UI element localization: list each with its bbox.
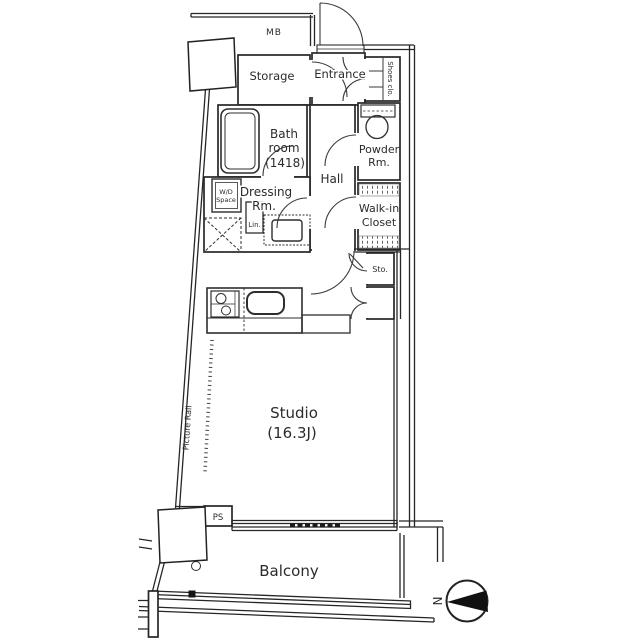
label-powder-2: Rm.	[368, 156, 390, 169]
label-bathroom-3: (1418)	[265, 156, 305, 170]
label-studio-2: (16.3J)	[267, 424, 317, 442]
label-picture-rail: Picture Rail	[181, 405, 193, 450]
label-entrance: Entrance	[314, 67, 366, 81]
floor-plan-page: MB Storage Entrance Shoes clo. Bath room…	[0, 0, 640, 640]
label-walkin-2: Closet	[362, 216, 397, 229]
room-outlines	[204, 53, 409, 527]
stove-grid	[211, 291, 235, 317]
pillar-top-left	[188, 38, 236, 91]
balcony-left-pier	[149, 591, 159, 637]
bottom-right-step-wall	[399, 521, 443, 562]
kitchen-counter-extension	[302, 315, 350, 333]
right-outer-wall	[410, 45, 415, 527]
balcony-right-partition	[400, 533, 404, 598]
balcony-drain	[192, 562, 201, 571]
gap-sto-door	[364, 254, 371, 284]
walkin-shelf-bottom	[359, 236, 399, 248]
entrance-front-door-arc	[320, 3, 363, 46]
label-small-storage: Sto.	[372, 265, 388, 274]
gap-studio-door	[312, 245, 354, 254]
label-powder-1: Powder	[359, 143, 400, 156]
compass-north-label: N	[430, 597, 444, 606]
left-slanted-wall	[176, 89, 210, 508]
railing-post	[189, 591, 196, 598]
entrance-left-wall	[311, 15, 315, 46]
mb-top-wall	[191, 14, 313, 18]
studio-door-arc	[311, 251, 354, 294]
label-mb: MB	[266, 28, 282, 38]
label-storage: Storage	[250, 69, 295, 83]
stove-burner-1	[216, 294, 226, 304]
label-ps: PS	[213, 513, 224, 523]
room-refrigerator-space	[367, 287, 394, 319]
label-dressing-2: Rm.	[252, 199, 276, 213]
balcony-outer-edge	[139, 607, 434, 623]
gap-storage-door	[305, 60, 313, 97]
compass: N	[430, 581, 488, 622]
balcony-left-wall	[153, 562, 165, 591]
label-wd-1: W/D	[219, 188, 233, 196]
label-bathroom-1: Bath	[270, 127, 298, 141]
walkin-shelf-top	[359, 184, 399, 196]
label-linen: Lin.	[248, 221, 261, 229]
label-walkin-1: Walk-in	[359, 202, 399, 215]
top-right-wall	[364, 45, 414, 50]
label-studio-1: Studio	[270, 404, 318, 422]
label-dressing-1: Dressing	[240, 185, 292, 199]
gap-dressing-door	[303, 196, 312, 229]
floor-plan-svg: MB Storage Entrance Shoes clo. Bath room…	[0, 0, 640, 640]
label-wd-2: Space	[216, 196, 236, 204]
kitchen-sink	[247, 292, 284, 314]
label-balcony: Balcony	[259, 562, 319, 580]
pillar-bottom-left	[158, 507, 207, 563]
label-hall: Hall	[320, 172, 343, 186]
label-shoes-closet: Shoes clo.	[386, 61, 394, 97]
gap-bath-door	[261, 172, 294, 181]
stove-burner-2	[222, 306, 231, 315]
label-bathroom-2: room	[268, 141, 299, 155]
picture-rail-ticks	[205, 340, 212, 472]
